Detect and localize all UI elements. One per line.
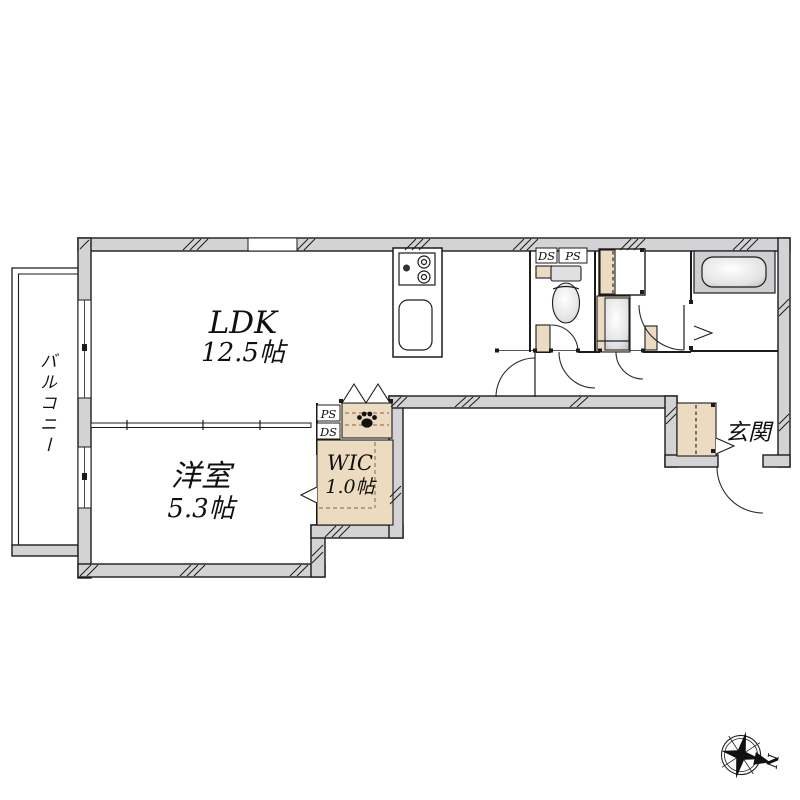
entrance-label: 玄関 — [725, 420, 774, 446]
bath-opening-arrow — [694, 326, 712, 340]
ldk-area-label: 12.5帖 — [201, 338, 289, 368]
ldk-door-arc — [496, 358, 535, 397]
bedroom-area-label: 5.3帖 — [167, 494, 238, 524]
washer-pan-icon — [599, 248, 645, 295]
bedroom-window — [78, 447, 91, 508]
pet-closet — [342, 403, 392, 438]
shoe-cabinet — [677, 403, 716, 456]
hallway-doors — [496, 352, 643, 397]
folding-door-icon — [339, 384, 393, 403]
stove-icon — [399, 253, 435, 285]
bedroom-label: 洋室 — [171, 459, 235, 494]
wic-zone: PS DS WIC 1.0帖 — [301, 384, 393, 525]
bathroom — [639, 251, 775, 350]
kitchen-counter — [393, 248, 442, 357]
toilet-icon — [551, 266, 581, 323]
ldk-window — [78, 300, 91, 398]
vanity-icon — [597, 296, 630, 352]
entrance-door-arc — [717, 467, 763, 513]
svg-text:DS: DS — [537, 249, 555, 263]
hall-door-arc — [616, 352, 643, 379]
balcony-side-wall — [12, 545, 78, 556]
hallway-south-wall — [389, 396, 677, 408]
toilet-shelf — [536, 266, 552, 278]
bedroom-bottom-wall — [78, 564, 325, 577]
wic-area-label: 1.0帖 — [325, 476, 377, 498]
svg-text:PS: PS — [564, 249, 581, 263]
balcony-label: バルコニー — [36, 352, 56, 457]
floorplan-drawing: バルコニー — [0, 0, 800, 800]
balcony: バルコニー — [12, 268, 78, 556]
genkan-south-wall — [665, 455, 718, 467]
toilet-room: DS PS — [536, 248, 587, 352]
right-wall — [778, 238, 790, 467]
floorplan-page: バルコニー — [0, 0, 800, 800]
svg-text:PS: PS — [320, 407, 337, 421]
room-labels: LDK 12.5帖 洋室 5.3帖 — [167, 305, 289, 524]
genkan-south-stub — [763, 455, 790, 467]
left-wall — [78, 238, 91, 578]
room-divider-sliding-doors — [91, 420, 311, 430]
north-label: N — [762, 752, 783, 771]
ldk-label: LDK — [208, 305, 279, 341]
sink-icon — [399, 300, 432, 350]
washroom — [597, 248, 657, 352]
top-window — [248, 238, 297, 251]
wic-room: WIC 1.0帖 — [301, 440, 393, 525]
toilet-door-leaf — [536, 325, 550, 352]
wic-label: WIC — [327, 451, 373, 475]
toilet-door-arc — [551, 325, 578, 352]
washroom-door-arc — [559, 352, 595, 388]
compass-icon: N — [716, 727, 782, 784]
svg-text:DS: DS — [319, 425, 337, 439]
wic-opening-arrow — [301, 487, 317, 503]
bathtub-icon — [702, 257, 766, 287]
